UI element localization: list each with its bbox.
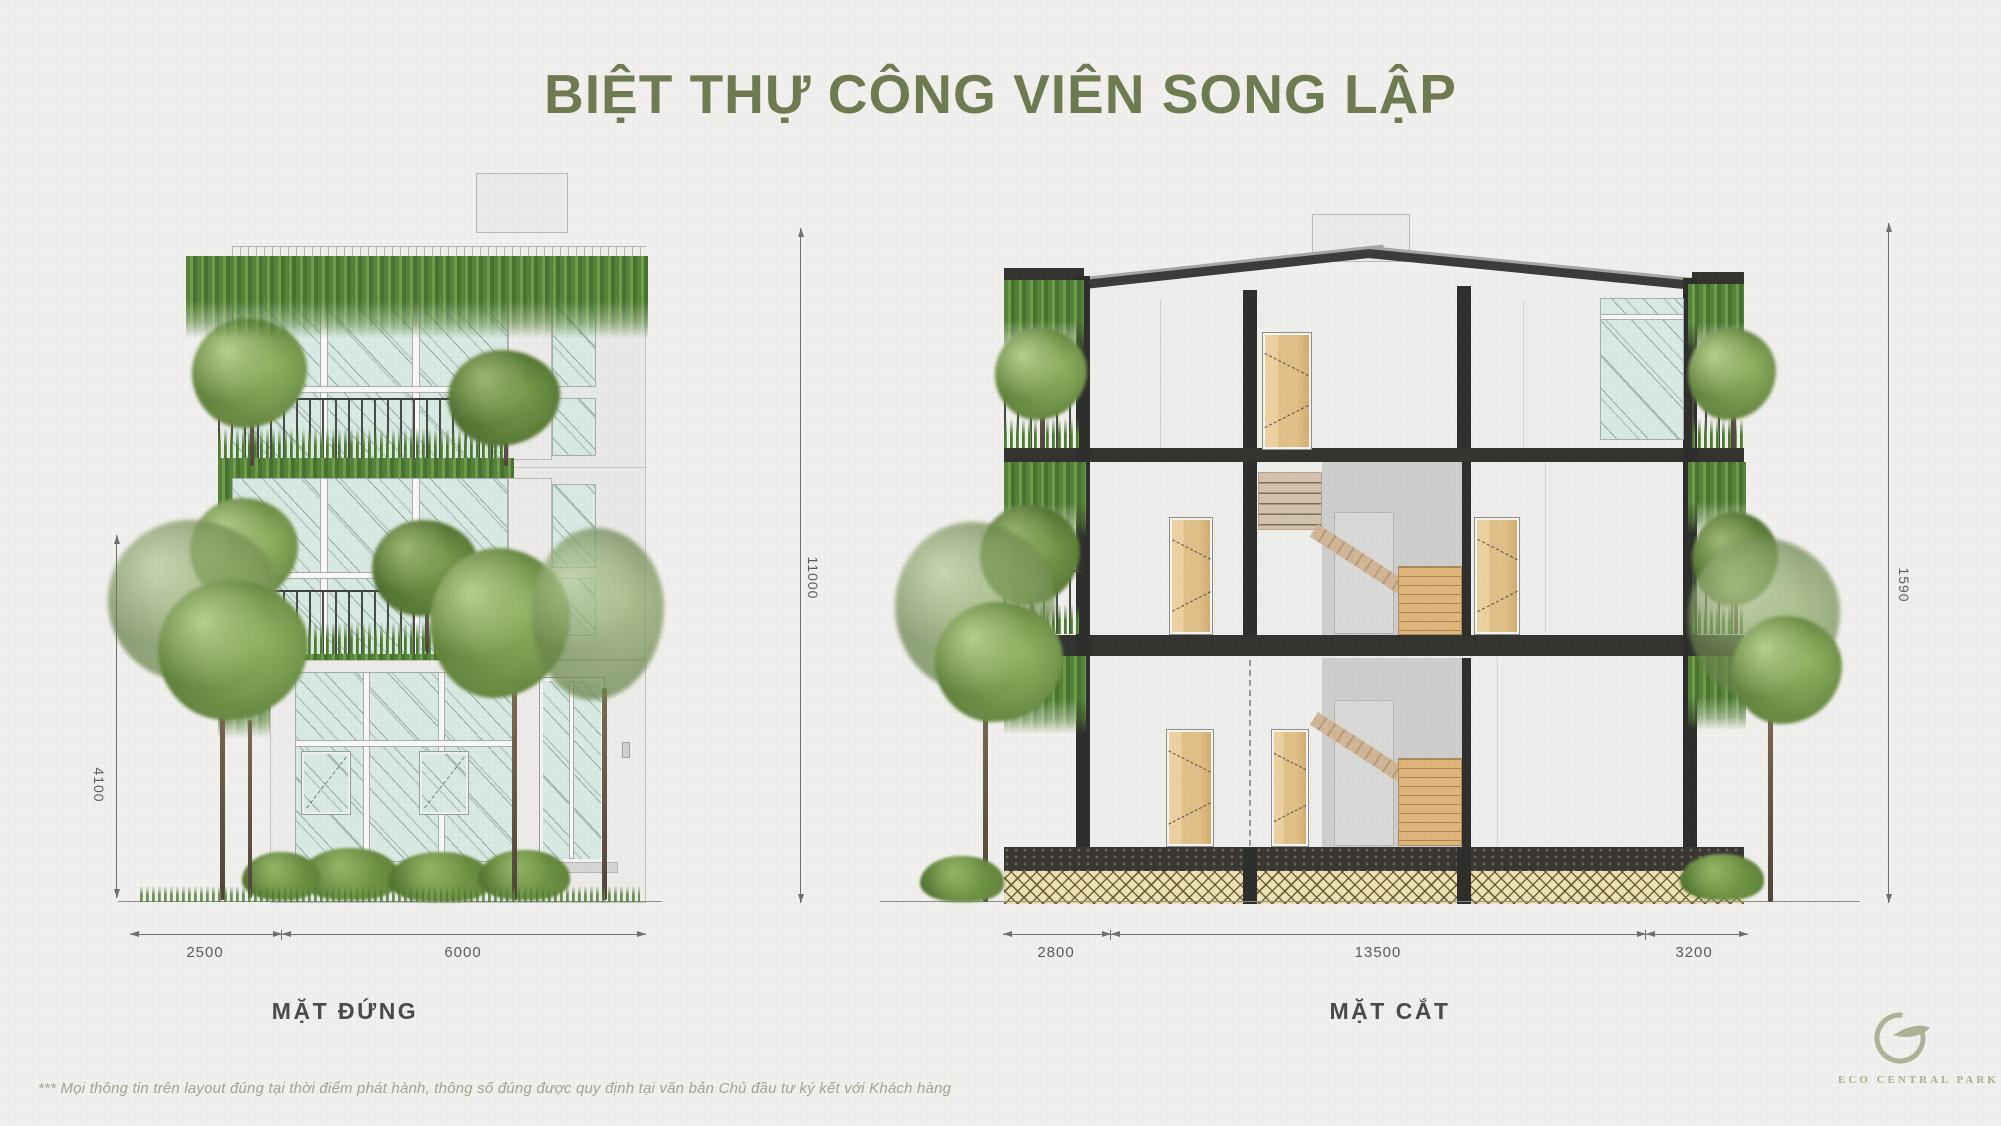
room-partition [1160,300,1161,448]
balcony-tree [192,318,312,468]
dim-value: 2800 [1013,944,1099,961]
dim-arrow [1886,223,1892,232]
layout-poster: BIỆT THỰ CÔNG VIÊN SONG LẬP [0,0,2001,1126]
tree-trunk [512,688,517,900]
dim-tick [1645,930,1646,940]
dim-arrow [1886,894,1892,903]
tree-trunk [1768,698,1773,902]
wood-door [1167,730,1213,846]
tree-crown [1732,616,1842,724]
room-partition [1523,300,1524,448]
dim-line-vertical [1888,223,1889,903]
ground-grass [140,886,640,902]
dim-line-vertical [116,535,117,898]
roof-eave-right [1692,272,1744,284]
dim-value: 1590 [1896,550,1912,620]
dim-arrow [114,535,120,544]
foundation-band [1004,847,1744,871]
tree-crown [935,602,1063,722]
roof-bulkhead [476,173,568,233]
dim-value: 6000 [418,944,508,961]
garden-tree [1688,538,1848,902]
stair-plank-wall [1398,566,1462,635]
tree-crown [1688,328,1776,420]
room-partition [1497,658,1498,846]
footer-disclaimer: *** Mọi thông tin trên layout đúng tại t… [38,1080,951,1097]
window-transom [1600,314,1684,320]
dim-tick [281,930,282,940]
dim-value: 2500 [165,944,245,961]
tree-crown [995,328,1087,420]
tree-crown [448,350,560,446]
dim-arrow [637,931,646,937]
balcony-tree [448,350,564,468]
dim-arrow [114,889,120,898]
foundation-post [1457,847,1471,904]
floor-slab [1004,635,1744,656]
wood-door [1263,333,1311,449]
floor-slab [1004,448,1744,462]
section-label: MẶT CẮT [1290,998,1490,1025]
garden-tree [108,520,328,902]
logo-e-icon [1866,1002,1934,1070]
dim-arrow [1111,931,1120,937]
balcony-tree [995,328,1091,448]
stair-plank-wall [1398,758,1462,846]
room-partition [1545,462,1546,633]
wood-slat-ceiling [1258,472,1322,530]
elevation-label: MẶT ĐỨNG [245,998,445,1025]
foundation-post [1243,847,1257,904]
column [1243,290,1257,448]
dim-value: 13500 [1330,944,1426,961]
tree-crown [158,580,308,720]
roof-vines [186,256,648,338]
dim-arrow [1739,931,1748,937]
hedge [920,856,1004,902]
dim-arrow [282,931,291,937]
dim-value: 11000 [805,537,821,619]
wood-door [1170,518,1212,634]
dim-value: 4100 [91,750,107,820]
wood-door [1272,730,1308,846]
foundation-hatch [1004,871,1744,904]
dim-arrow [798,228,804,237]
tree-trunk [602,688,607,900]
dim-arrow [1646,931,1655,937]
tree-trunk [220,690,225,900]
dim-line-vertical [800,228,801,903]
balcony-tree [1688,328,1780,448]
roof-eave-left [1004,268,1084,280]
dim-tick [1110,930,1111,940]
logo-circle [1871,1009,1929,1067]
brand-logo: ECO CENTRAL PARK [1838,1002,1962,1086]
dim-line-horizontal [1003,934,1748,935]
garden-tree [532,528,672,902]
column-dashed [1249,660,1251,846]
page-title: BIỆT THỰ CÔNG VIÊN SONG LẬP [0,62,2001,126]
hedge [1680,854,1764,900]
logo-wordmark: ECO CENTRAL PARK [1838,1074,1962,1086]
dim-arrow [1003,931,1012,937]
dim-line-horizontal [130,934,646,935]
wood-door [1475,518,1519,634]
tree-trunk [248,720,252,898]
column [1243,462,1257,635]
garden-tree [895,522,1075,902]
dim-arrow [798,894,804,903]
dim-value: 3200 [1648,944,1740,961]
tree-crown [532,528,664,700]
column [1457,286,1471,448]
dim-arrow [130,931,139,937]
